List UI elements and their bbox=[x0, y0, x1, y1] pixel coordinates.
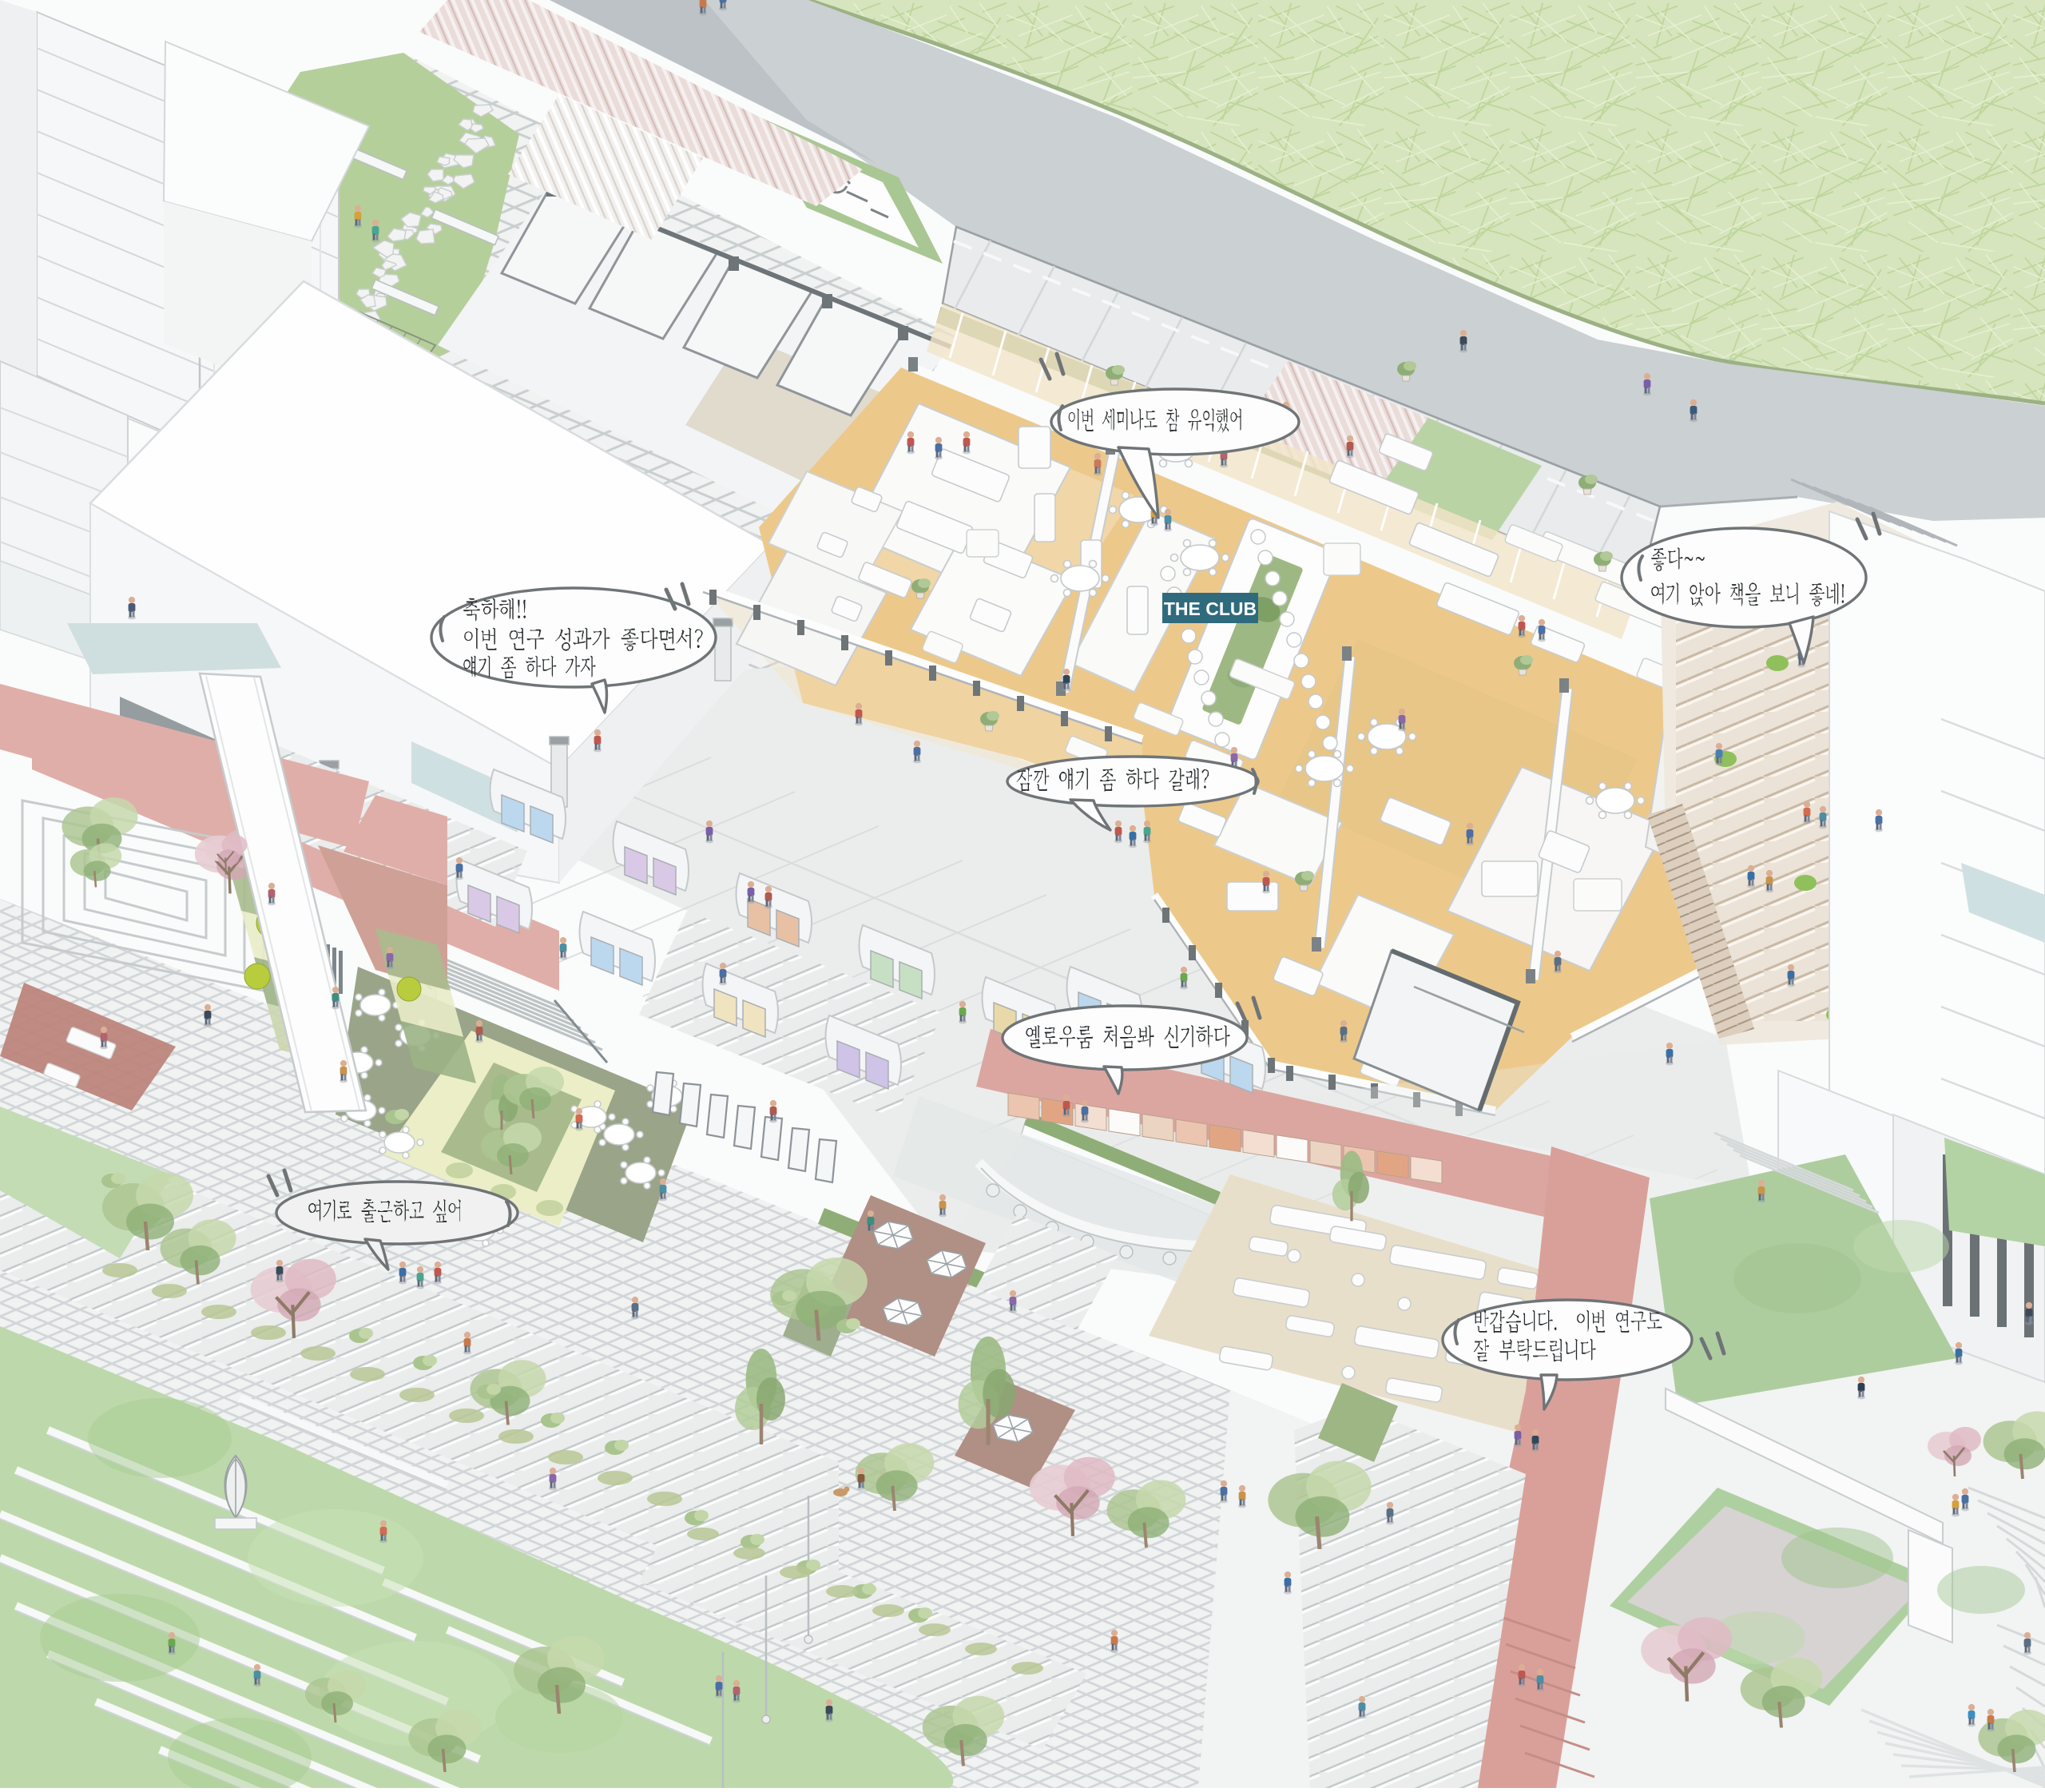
svg-text:THE CLUB: THE CLUB bbox=[1164, 598, 1257, 619]
